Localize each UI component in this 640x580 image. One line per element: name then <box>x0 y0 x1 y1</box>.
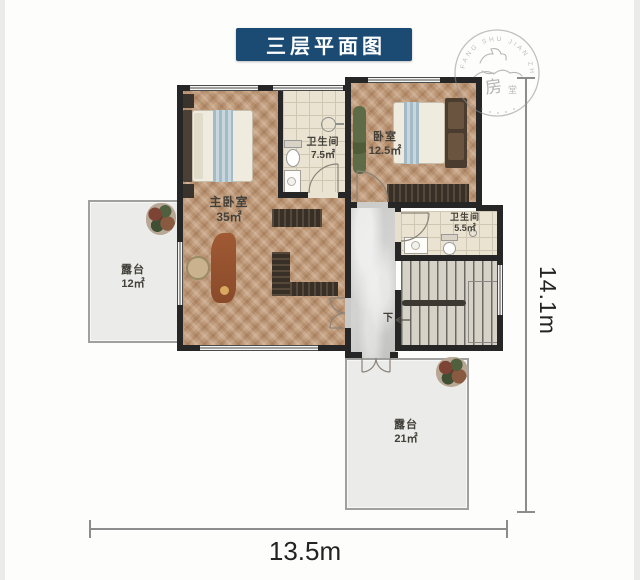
dimension-width-label: 13.5m <box>245 536 365 567</box>
room-label-bathroom-small: 卫生间 5.5㎡ <box>446 212 484 235</box>
plan-title-banner: 三层平面图 <box>236 28 412 61</box>
room-area: 7.5㎡ <box>301 150 345 163</box>
dimension-tick <box>517 511 535 513</box>
room-label-terrace-left: 露台 12㎡ <box>111 264 155 292</box>
room-name: 卫生间 <box>301 137 345 150</box>
dimension-line-horizontal <box>90 528 508 530</box>
room-label-bathroom-large: 卫生间 7.5㎡ <box>301 137 345 162</box>
room-area: 12.5㎡ <box>362 145 408 159</box>
room-area: 12㎡ <box>111 278 155 292</box>
room-label-bedroom: 卧室 12.5㎡ <box>362 131 408 159</box>
room-name: 露台 <box>111 264 155 278</box>
room-label-terrace-bottom: 露台 21㎡ <box>384 419 428 447</box>
dimension-line-vertical <box>525 78 527 512</box>
room-name: 卫生间 <box>446 212 484 223</box>
dimension-tick <box>506 520 508 538</box>
dimension-tick <box>517 77 535 79</box>
floor-plan-page: 三层平面图 <box>0 0 640 580</box>
room-area: 21㎡ <box>384 433 428 447</box>
room-name: 卧室 <box>362 131 408 145</box>
plan-title: 三层平面图 <box>262 30 386 59</box>
dimension-height-label: 14.1m <box>534 266 561 335</box>
dimension-tick <box>89 520 91 538</box>
room-area: 5.5㎡ <box>446 223 484 234</box>
room-name: 露台 <box>384 419 428 433</box>
stairs-down-label: 下 <box>381 313 395 326</box>
room-area: 35㎡ <box>201 210 257 225</box>
room-label-master-bedroom: 主卧室 35㎡ <box>201 195 257 225</box>
room-name: 主卧室 <box>201 195 257 210</box>
